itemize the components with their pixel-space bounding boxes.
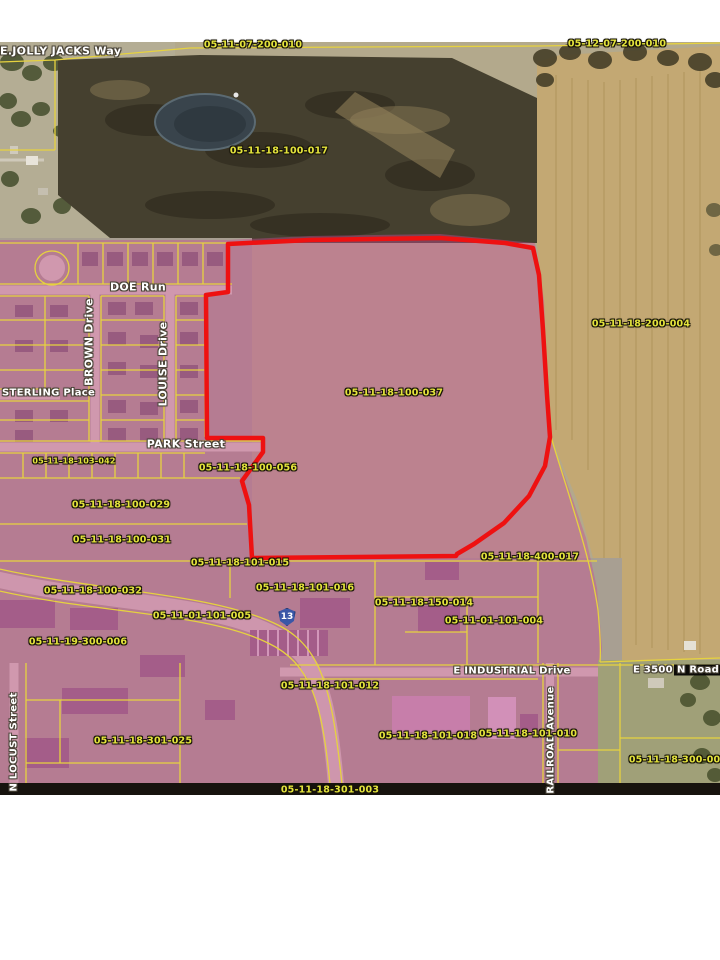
map-bottom-bar	[0, 783, 720, 795]
route-13-shield-number: 13	[281, 612, 294, 622]
aerial-parcel-map[interactable]: E.JOLLY JACKS Way DOE Run BROWN Drive LO…	[0, 0, 720, 960]
map-artwork	[0, 0, 720, 960]
bottom-right-terrain	[598, 660, 720, 784]
plowed-field	[58, 55, 537, 243]
pond	[155, 93, 255, 151]
screenshot-stage: E.JOLLY JACKS Way DOE Run BROWN Drive LO…	[0, 0, 720, 960]
pink-zoning-overlay	[0, 234, 620, 784]
